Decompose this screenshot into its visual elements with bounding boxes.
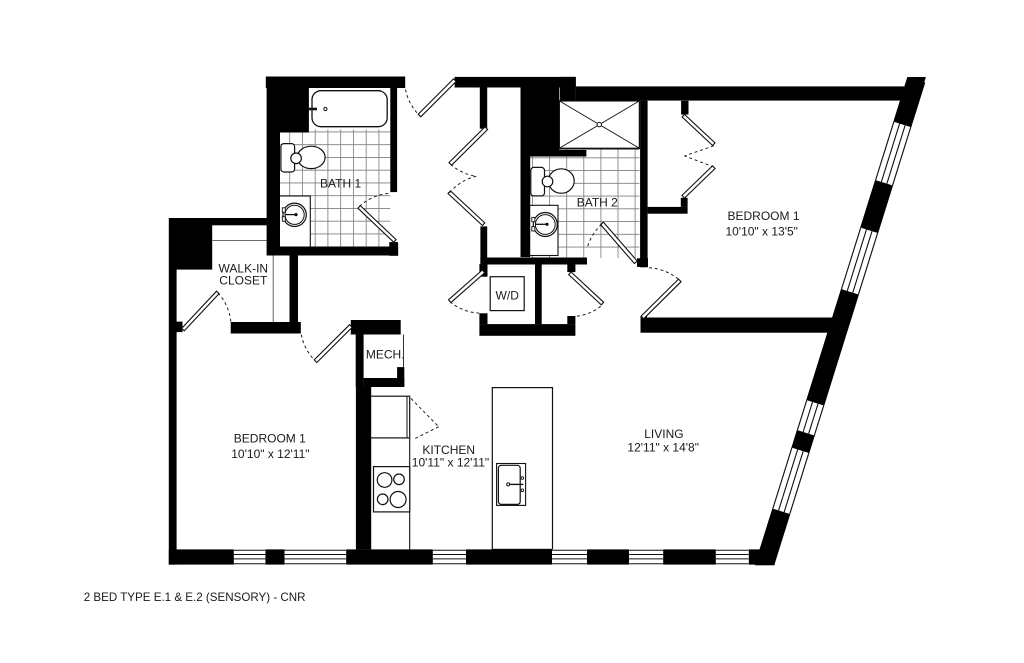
svg-text:CLOSET: CLOSET xyxy=(219,273,268,287)
svg-text:BEDROOM 1: BEDROOM 1 xyxy=(727,209,799,223)
svg-text:12'11" x 14'8": 12'11" x 14'8" xyxy=(627,441,699,455)
svg-text:W/D: W/D xyxy=(496,289,520,303)
svg-text:BATH 2: BATH 2 xyxy=(577,196,618,210)
svg-text:LIVING: LIVING xyxy=(644,427,683,441)
svg-text:BEDROOM 1: BEDROOM 1 xyxy=(234,432,306,446)
svg-text:MECH.: MECH. xyxy=(366,347,405,361)
svg-text:BATH 1: BATH 1 xyxy=(320,177,361,191)
svg-text:2 BED TYPE E.1 & E.2 (SENSORY): 2 BED TYPE E.1 & E.2 (SENSORY) - CNR xyxy=(84,591,306,604)
svg-text:10'10" x 12'11": 10'10" x 12'11" xyxy=(231,447,309,461)
svg-text:10'11" x 12'11": 10'11" x 12'11" xyxy=(412,455,489,469)
svg-text:10'10" x 13'5": 10'10" x 13'5" xyxy=(725,225,798,239)
